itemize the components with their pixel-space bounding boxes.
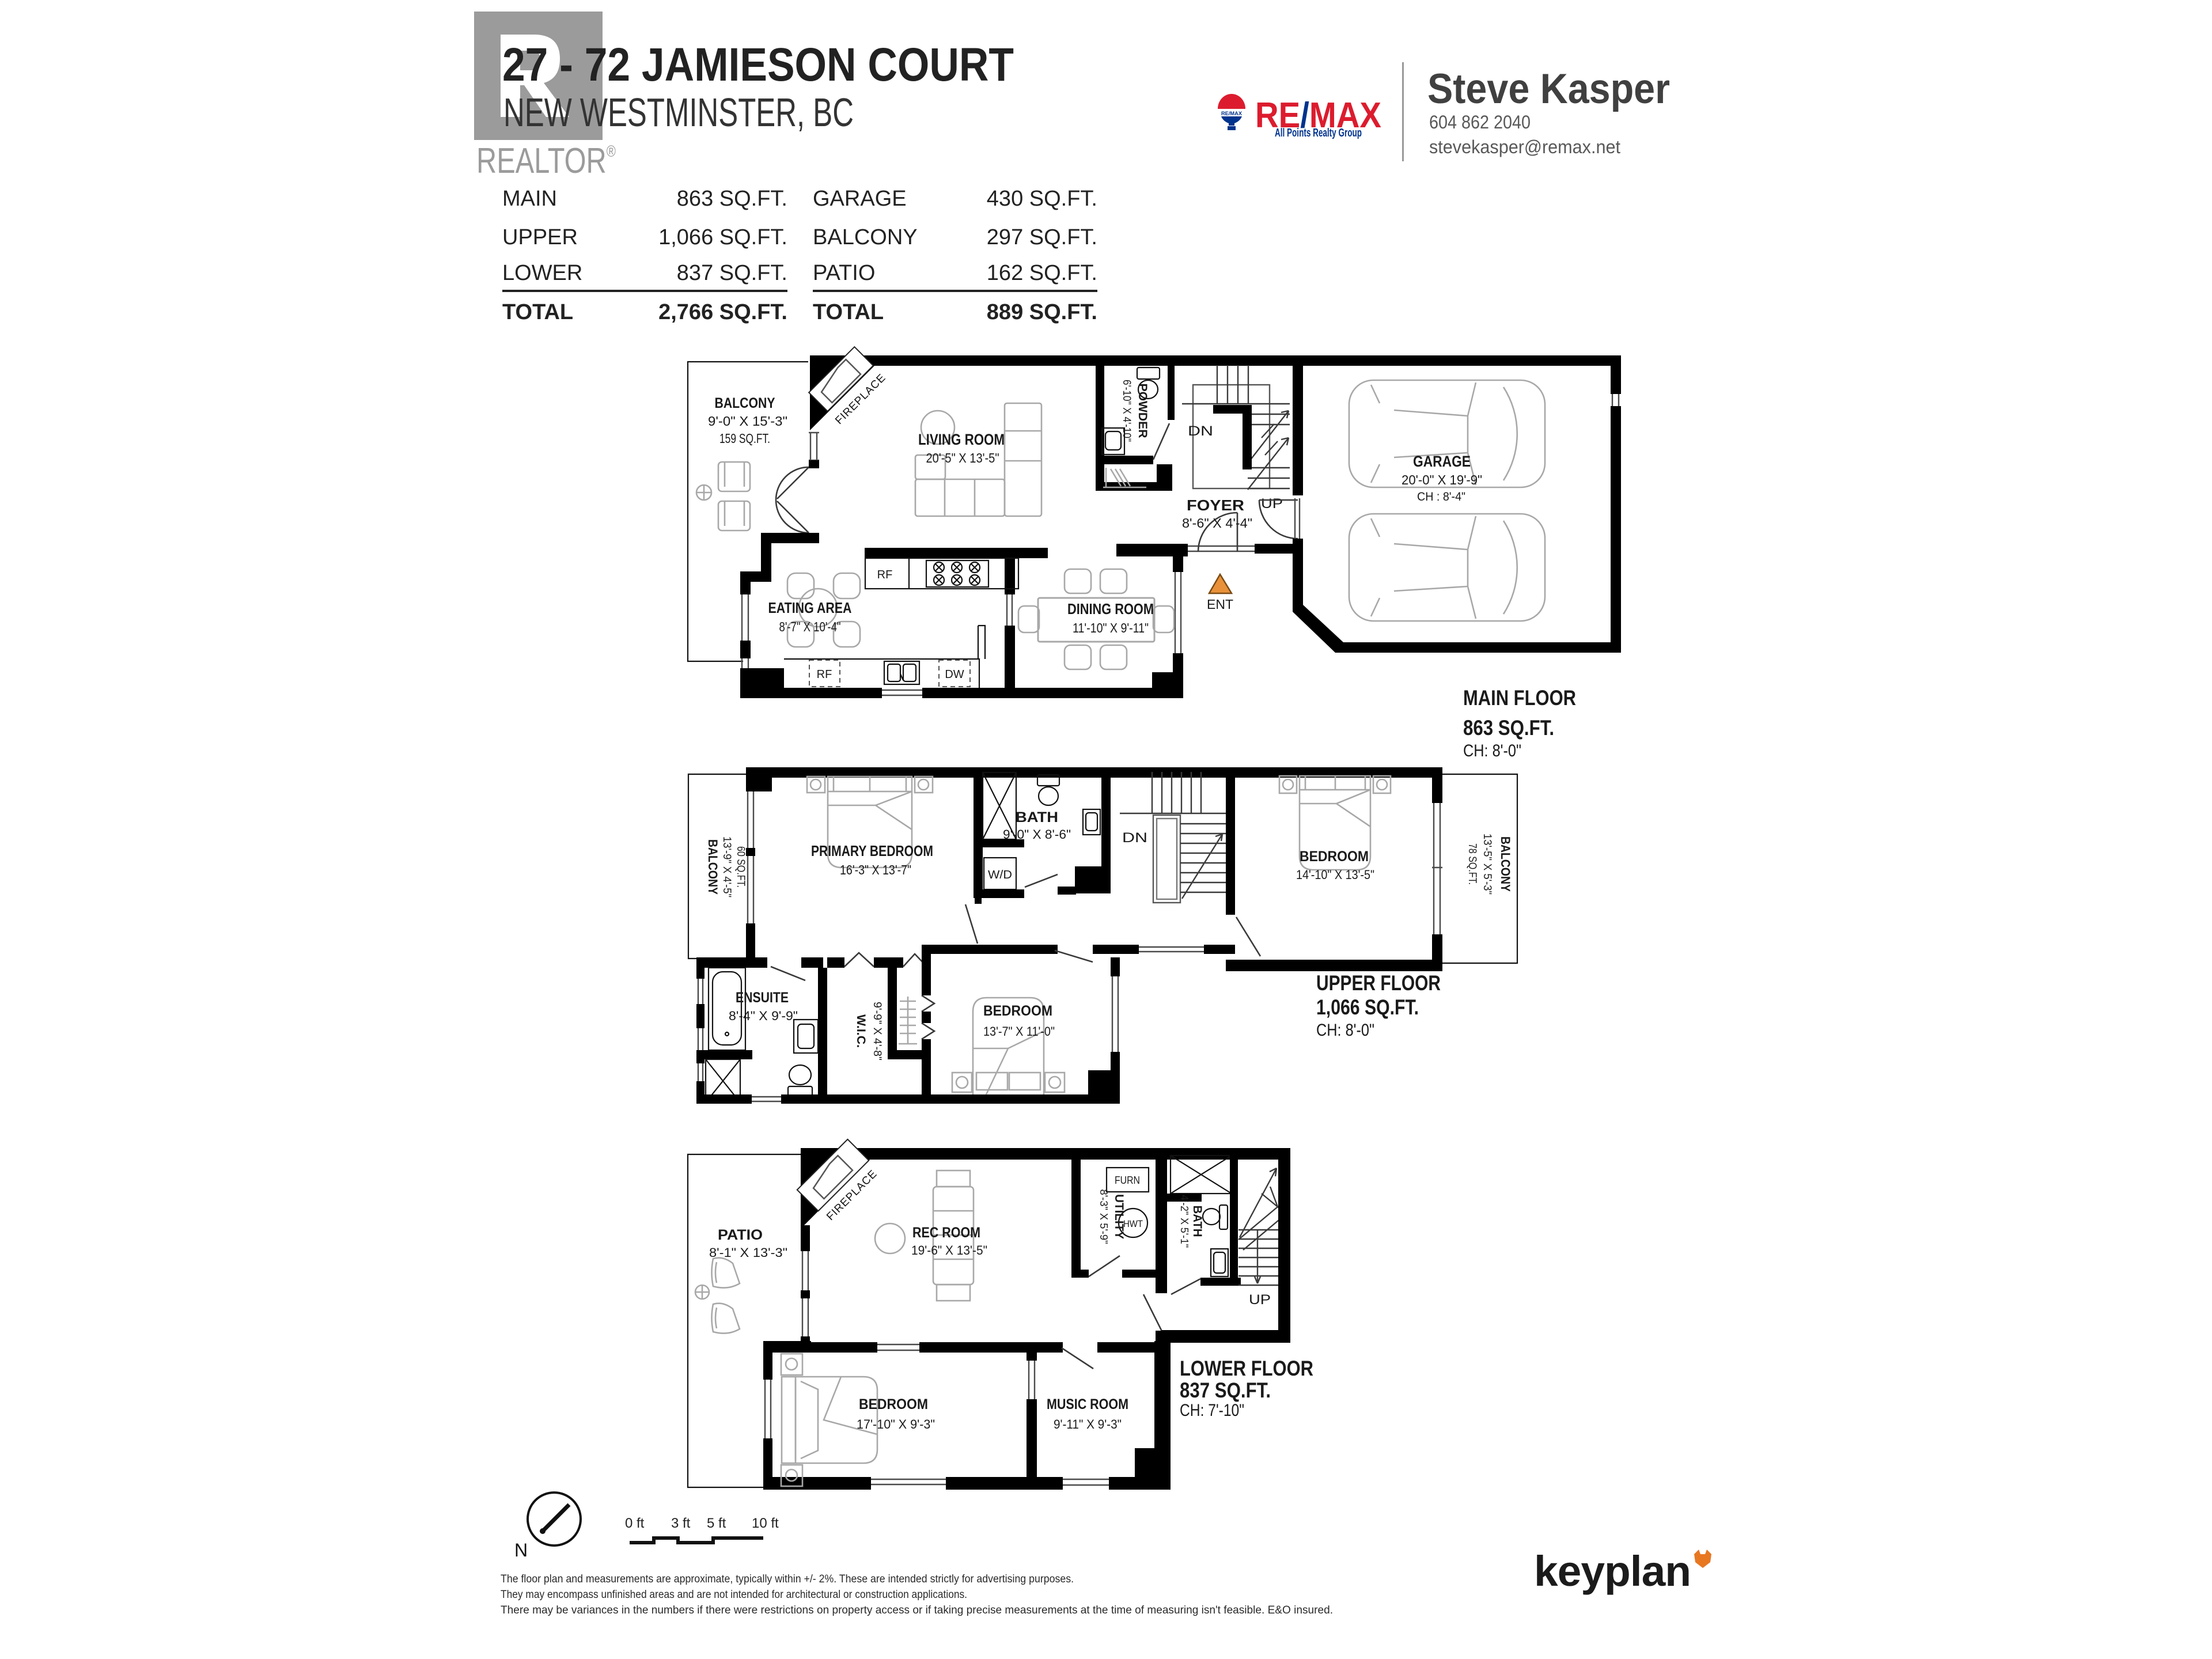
svg-text:BATH: BATH [1191, 1206, 1204, 1237]
svg-text:BALCONY: BALCONY [715, 395, 775, 411]
svg-text:9'-0" X 15'-3": 9'-0" X 15'-3" [708, 414, 787, 429]
svg-text:297 SQ.FT.: 297 SQ.FT. [987, 225, 1097, 249]
svg-text:UP: UP [1261, 496, 1283, 512]
svg-text:PRIMARY BEDROOM: PRIMARY BEDROOM [811, 842, 933, 859]
svg-text:ENSUITE: ENSUITE [736, 990, 789, 1006]
svg-text:UPPER FLOOR: UPPER FLOOR [1316, 971, 1441, 995]
svg-text:EATING AREA: EATING AREA [768, 599, 852, 616]
svg-text:27 - 72 JAMIESON COURT: 27 - 72 JAMIESON COURT [502, 39, 1014, 91]
svg-text:BEDROOM: BEDROOM [859, 1396, 928, 1412]
svg-text:9'-11" X 9'-3": 9'-11" X 9'-3" [1054, 1417, 1122, 1431]
svg-text:MAIN FLOOR: MAIN FLOOR [1463, 686, 1576, 710]
svg-text:13'-5" X 5'-3": 13'-5" X 5'-3" [1481, 834, 1493, 895]
svg-text:BALCONY: BALCONY [1498, 836, 1513, 892]
svg-text:3 ft: 3 ft [671, 1516, 691, 1531]
svg-text:RF: RF [877, 569, 893, 581]
svg-text:CH: 8'-0": CH: 8'-0" [1316, 1021, 1374, 1040]
svg-text:LOWER FLOOR: LOWER FLOOR [1180, 1357, 1313, 1380]
svg-text:CH: 8'-0": CH: 8'-0" [1463, 741, 1521, 760]
svg-text:HWT: HWT [1123, 1218, 1143, 1229]
svg-text:CH : 8'-4": CH : 8'-4" [1417, 490, 1465, 503]
svg-text:GARAGE: GARAGE [1413, 453, 1471, 470]
svg-text:8'-3" X 5'-9": 8'-3" X 5'-9" [1098, 1190, 1109, 1244]
svg-text:8'-4" X 9'-9": 8'-4" X 9'-9" [729, 1009, 798, 1023]
svg-text:863 SQ.FT.: 863 SQ.FT. [1463, 716, 1554, 740]
svg-text:FOYER: FOYER [1187, 497, 1244, 514]
svg-text:W/D: W/D [988, 869, 1012, 881]
svg-text:UPPER: UPPER [502, 225, 578, 249]
svg-text:BEDROOM: BEDROOM [983, 1003, 1052, 1019]
svg-text:BEDROOM: BEDROOM [1300, 849, 1369, 865]
svg-text:837 SQ.FT.: 837 SQ.FT. [677, 261, 787, 285]
svg-text:The floor plan and measurement: The floor plan and measurements are appr… [501, 1573, 1074, 1585]
svg-text:6'-10" X 4'-10": 6'-10" X 4'-10" [1120, 380, 1132, 442]
svg-text:20'-0" X 19'-9": 20'-0" X 19'-9" [1402, 472, 1482, 487]
svg-text:1,066 SQ.FT.: 1,066 SQ.FT. [1316, 995, 1419, 1019]
svg-text:889 SQ.FT.: 889 SQ.FT. [987, 300, 1097, 324]
svg-text:19'-6" X 13'-5": 19'-6" X 13'-5" [911, 1243, 987, 1257]
svg-text:159 SQ.FT.: 159 SQ.FT. [719, 431, 770, 446]
svg-text:BALCONY: BALCONY [813, 225, 918, 249]
svg-text:LOWER: LOWER [502, 261, 582, 285]
svg-text:MUSIC ROOM: MUSIC ROOM [1047, 1396, 1128, 1412]
svg-text:All Points Realty Group: All Points Realty Group [1275, 127, 1362, 139]
svg-text:RF: RF [817, 668, 832, 681]
svg-text:DN: DN [1188, 423, 1213, 439]
svg-text:13'-9" X 4'-5": 13'-9" X 4'-5" [721, 836, 733, 897]
svg-text:N: N [514, 1540, 528, 1560]
svg-text:Steve Kasper: Steve Kasper [1427, 66, 1670, 112]
svg-text:1,066 SQ.FT.: 1,066 SQ.FT. [658, 225, 787, 249]
svg-text:W.I.C.: W.I.C. [854, 1014, 868, 1048]
svg-text:162 SQ.FT.: 162 SQ.FT. [987, 261, 1097, 285]
svg-text:8'-7" X 10'-4": 8'-7" X 10'-4" [779, 619, 841, 634]
svg-text:10 ft: 10 ft [752, 1516, 779, 1531]
svg-text:They may encompass unfinished: They may encompass unfinished areas and … [501, 1589, 967, 1601]
svg-text:RE/MAX: RE/MAX [1221, 111, 1242, 116]
svg-text:keyplan: keyplan [1534, 1547, 1691, 1595]
svg-text:BATH: BATH [1016, 809, 1058, 825]
svg-text:430 SQ.FT.: 430 SQ.FT. [987, 187, 1097, 211]
svg-text:MAIN: MAIN [502, 187, 557, 211]
svg-text:78 SQ.FT.: 78 SQ.FT. [1466, 843, 1478, 885]
svg-text:stevekasper@remax.net: stevekasper@remax.net [1429, 137, 1620, 157]
svg-text:8'-6" X 4'-4": 8'-6" X 4'-4" [1182, 516, 1252, 531]
svg-text:DW: DW [945, 668, 964, 681]
svg-text:TOTAL: TOTAL [813, 300, 884, 324]
svg-text:UP: UP [1249, 1292, 1271, 1308]
svg-text:PATIO: PATIO [718, 1227, 763, 1243]
svg-text:5 ft: 5 ft [707, 1516, 726, 1531]
svg-text:9'-0" X 8'-6": 9'-0" X 8'-6" [1003, 827, 1071, 842]
svg-text:REC ROOM: REC ROOM [912, 1225, 980, 1241]
svg-text:863 SQ.FT.: 863 SQ.FT. [677, 187, 787, 211]
svg-text:0 ft: 0 ft [625, 1516, 645, 1531]
svg-text:POWDER: POWDER [1136, 384, 1149, 438]
svg-text:604 862 2040: 604 862 2040 [1429, 112, 1531, 132]
svg-text:GARAGE: GARAGE [813, 187, 907, 211]
svg-text:DINING ROOM: DINING ROOM [1067, 600, 1154, 618]
svg-text:11'-10" X 9'-11": 11'-10" X 9'-11" [1073, 620, 1149, 635]
svg-text:9'-9" X 4'-8": 9'-9" X 4'-8" [871, 1002, 883, 1060]
svg-text:CH: 7'-10": CH: 7'-10" [1180, 1401, 1244, 1420]
svg-text:16'-3" X 13'-7": 16'-3" X 13'-7" [840, 862, 911, 877]
svg-text:LIVING ROOM: LIVING ROOM [918, 431, 1005, 448]
svg-text:2,766 SQ.FT.: 2,766 SQ.FT. [658, 300, 787, 324]
svg-text:ENT: ENT [1207, 597, 1233, 612]
svg-text:TOTAL: TOTAL [502, 300, 573, 324]
svg-text:FURN: FURN [1115, 1175, 1140, 1186]
svg-text:60 SQ.FT.: 60 SQ.FT. [734, 846, 747, 888]
svg-text:14'-10" X 13'-5": 14'-10" X 13'-5" [1296, 868, 1374, 882]
svg-text:REALTOR®: REALTOR® [476, 141, 616, 181]
svg-text:NEW WESTMINSTER, BC: NEW WESTMINSTER, BC [503, 90, 854, 135]
svg-text:13'-7" X 11'-0": 13'-7" X 11'-0" [983, 1024, 1055, 1039]
svg-text:DN: DN [1122, 830, 1147, 846]
svg-text:UTILITY: UTILITY [1112, 1194, 1126, 1239]
svg-text:4'-2" X 5'-1": 4'-2" X 5'-1" [1179, 1195, 1190, 1248]
svg-text:BALCONY: BALCONY [706, 839, 720, 895]
svg-text:17'-10" X 9'-3": 17'-10" X 9'-3" [857, 1417, 935, 1431]
svg-text:PATIO: PATIO [813, 261, 875, 285]
svg-text:20'-5" X 13'-5": 20'-5" X 13'-5" [926, 450, 999, 465]
svg-text:837 SQ.FT.: 837 SQ.FT. [1180, 1378, 1271, 1402]
svg-text:There may be variances in the: There may be variances in the numbers if… [501, 1604, 1333, 1616]
